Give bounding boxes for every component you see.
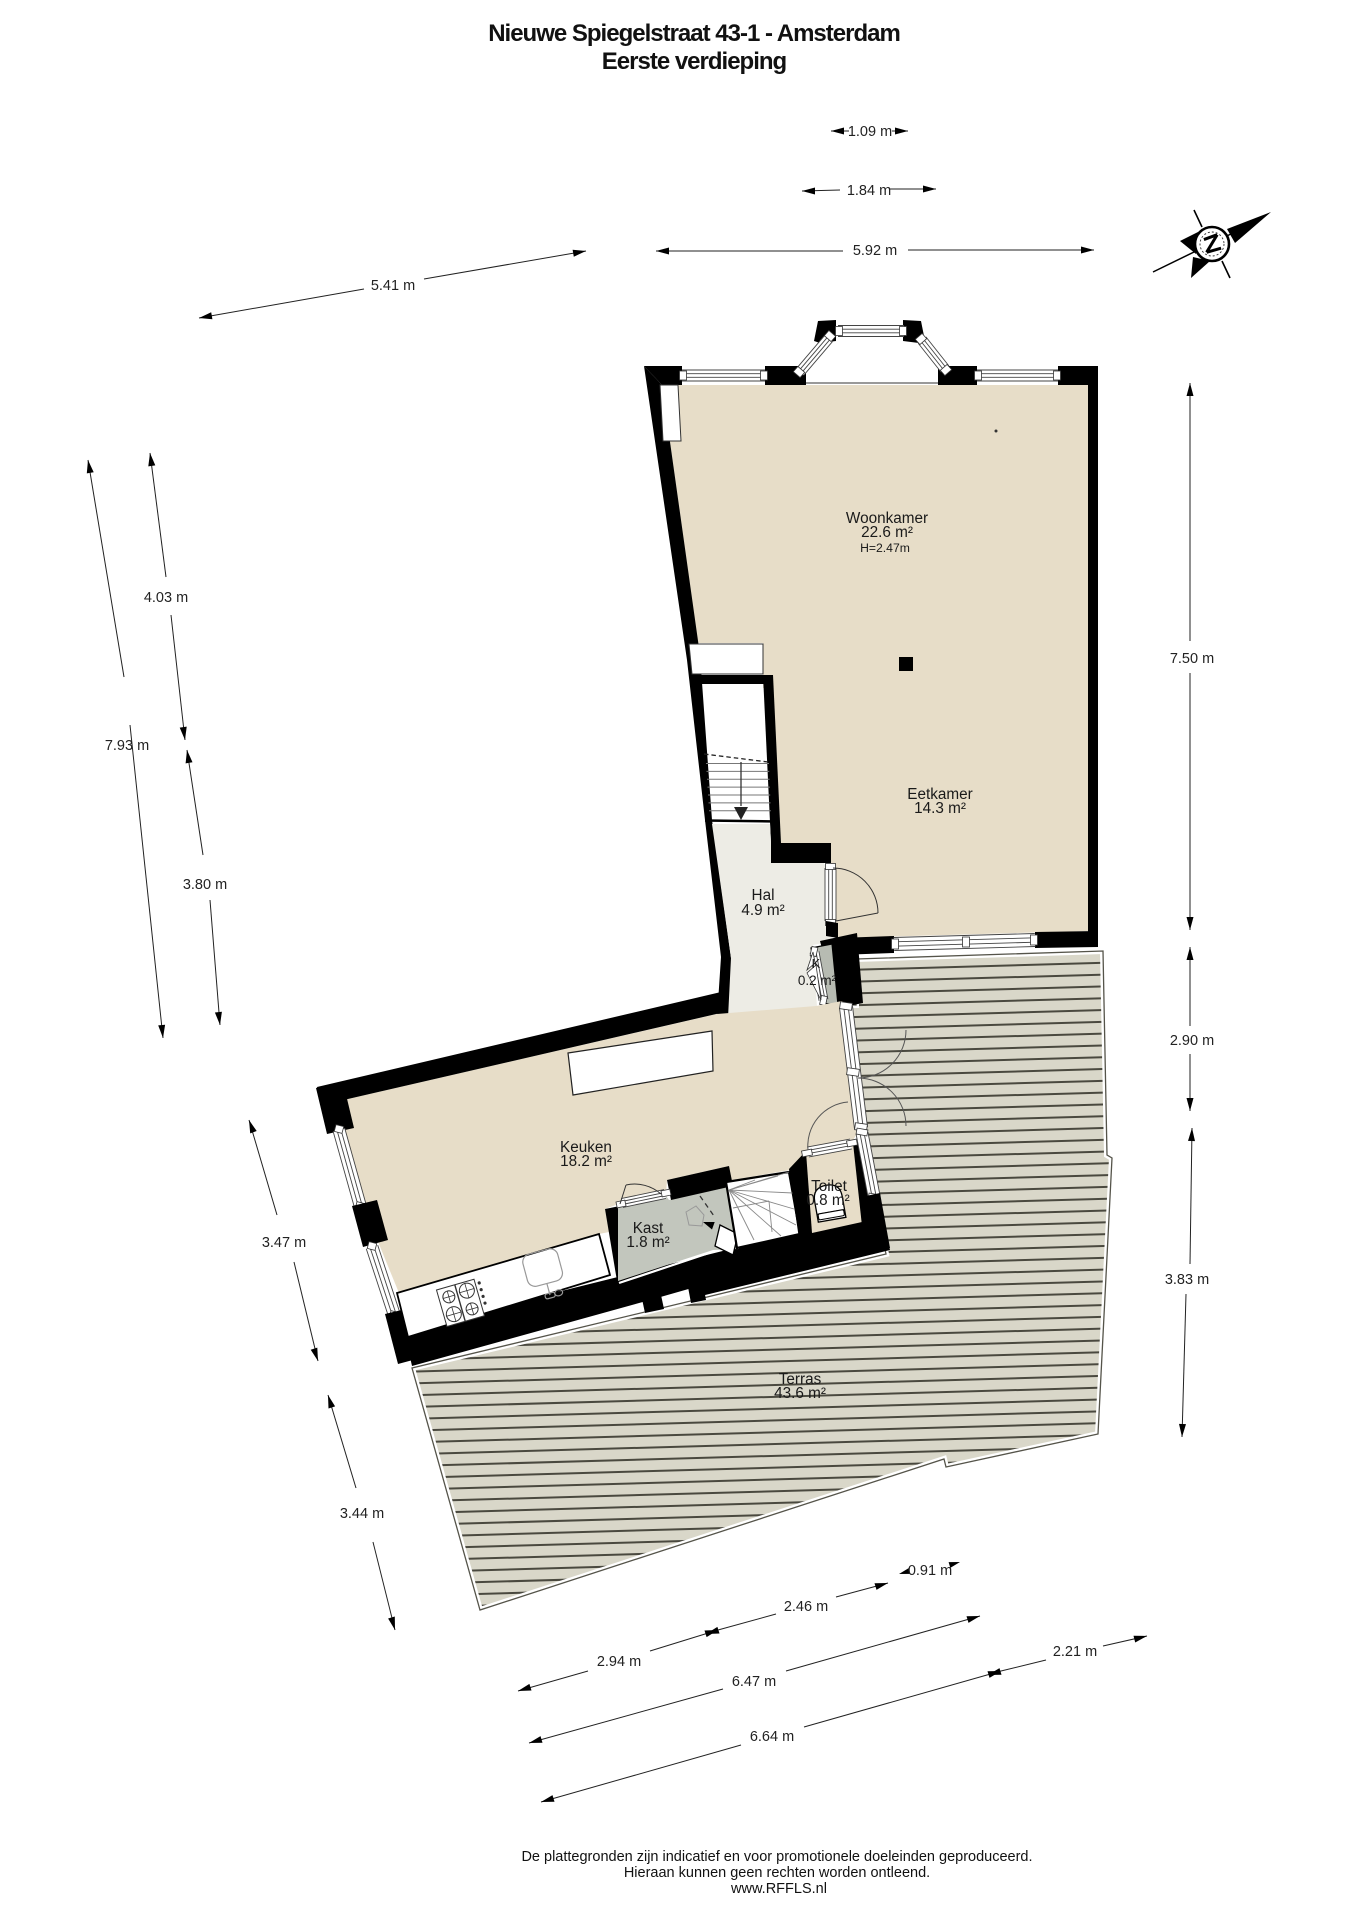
svg-text:3.47 m: 3.47 m: [262, 1235, 306, 1251]
svg-text:H=2.47m: H=2.47m: [860, 541, 910, 555]
svg-text:2.94 m: 2.94 m: [597, 1654, 641, 1670]
svg-text:2.90 m: 2.90 m: [1170, 1033, 1214, 1049]
svg-text:2.21 m: 2.21 m: [1053, 1644, 1097, 1660]
svg-text:Eerste verdieping: Eerste verdieping: [602, 48, 787, 75]
svg-text:0.8 m²: 0.8 m²: [806, 1192, 849, 1209]
svg-text:6.47 m: 6.47 m: [732, 1674, 776, 1690]
svg-text:18.2 m²: 18.2 m²: [560, 1153, 612, 1170]
svg-text:Nieuwe Spiegelstraat 43-1 - Am: Nieuwe Spiegelstraat 43-1 - Amsterdam: [488, 20, 900, 47]
svg-text:1.09 m: 1.09 m: [848, 124, 892, 140]
svg-text:1.8 m²: 1.8 m²: [626, 1234, 669, 1251]
svg-text:2.46 m: 2.46 m: [784, 1599, 828, 1615]
svg-text:Hieraan kunnen geen rechten wo: Hieraan kunnen geen rechten worden ontle…: [624, 1865, 930, 1881]
svg-text:4.03 m: 4.03 m: [144, 590, 188, 606]
svg-text:1.84 m: 1.84 m: [847, 183, 891, 199]
svg-text:5.92 m: 5.92 m: [853, 243, 897, 259]
svg-text:6.64 m: 6.64 m: [750, 1729, 794, 1745]
svg-text:7.93 m: 7.93 m: [105, 738, 149, 754]
svg-text:0.2 m²: 0.2 m²: [798, 973, 837, 988]
svg-text:0.91 m: 0.91 m: [908, 1563, 952, 1579]
svg-text:5.41 m: 5.41 m: [371, 278, 415, 294]
svg-text:3.83 m: 3.83 m: [1165, 1272, 1209, 1288]
svg-text:7.50 m: 7.50 m: [1170, 651, 1214, 667]
svg-text:14.3 m²: 14.3 m²: [914, 800, 966, 817]
svg-text:3.44 m: 3.44 m: [340, 1506, 384, 1522]
svg-text:www.RFFLS.nl: www.RFFLS.nl: [730, 1881, 827, 1897]
svg-text:4.9 m²: 4.9 m²: [741, 902, 784, 919]
svg-text:22.6 m²: 22.6 m²: [861, 524, 913, 541]
svg-text:43.6 m²: 43.6 m²: [774, 1385, 826, 1402]
svg-text:De plattegronden zijn indicati: De plattegronden zijn indicatief en voor…: [521, 1849, 1032, 1865]
svg-text:3.80 m: 3.80 m: [183, 877, 227, 893]
svg-text:K: K: [812, 956, 821, 971]
